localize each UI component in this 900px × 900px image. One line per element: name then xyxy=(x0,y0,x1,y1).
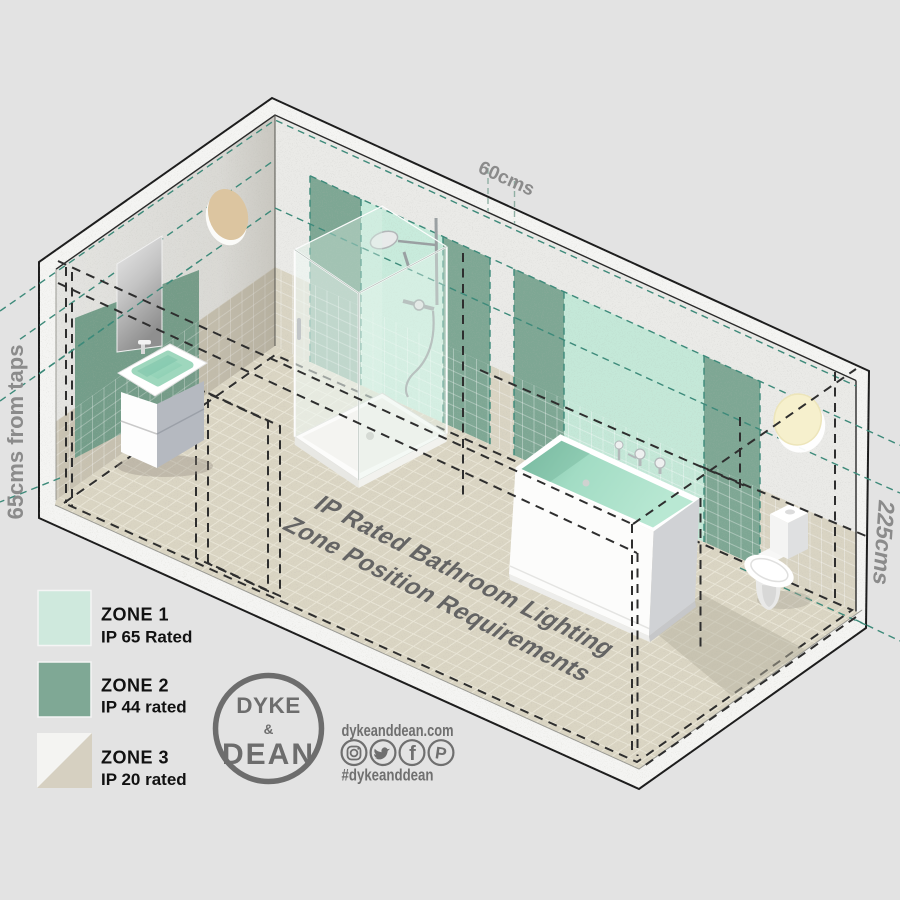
svg-text:ZONE 2: ZONE 2 xyxy=(101,676,169,696)
svg-text:f: f xyxy=(409,743,416,765)
svg-text:IP 65 Rated: IP 65 Rated xyxy=(101,628,192,647)
svg-text:65cms from taps: 65cms from taps xyxy=(3,345,28,520)
svg-text:DYKE: DYKE xyxy=(236,693,301,718)
svg-text:IP 20 rated: IP 20 rated xyxy=(101,770,187,789)
svg-text:IP 44 rated: IP 44 rated xyxy=(101,698,187,717)
svg-text:ZONE 1: ZONE 1 xyxy=(101,605,169,625)
svg-text:&: & xyxy=(264,722,274,737)
svg-text:ZONE 3: ZONE 3 xyxy=(101,748,169,768)
svg-text:#dykeanddean: #dykeanddean xyxy=(342,767,434,785)
svg-text:dykeanddean.com: dykeanddean.com xyxy=(342,722,454,740)
svg-text:DEAN: DEAN xyxy=(222,738,315,771)
